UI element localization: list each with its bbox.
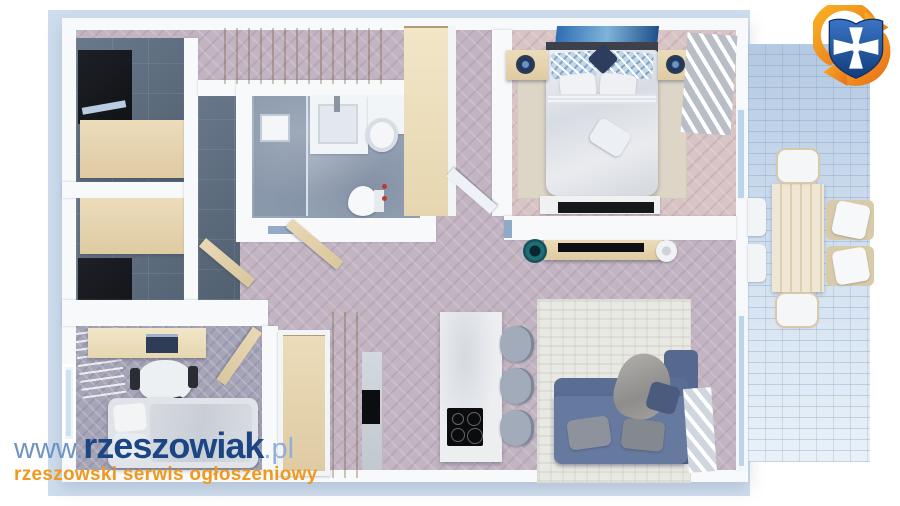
rzeszowiak-logo xyxy=(813,5,899,91)
plant-pot-teal xyxy=(523,239,547,263)
shower-enclosure xyxy=(254,96,308,216)
washing-machine-top xyxy=(366,118,398,152)
watermark-tld: .pl xyxy=(263,433,294,465)
bar-stool-2 xyxy=(500,368,534,404)
kitchen-cabinet-column xyxy=(332,312,362,478)
wood-dresser-mid xyxy=(80,198,186,254)
sofa-pillow-grey-1 xyxy=(566,415,612,451)
chair-cushion-2 xyxy=(831,246,870,285)
wood-dresser-top xyxy=(80,120,186,178)
tv-screen xyxy=(558,243,644,252)
sofa-pillow-grey-2 xyxy=(621,418,666,452)
induction-cooktop xyxy=(447,408,483,446)
watermark-www: www. xyxy=(14,433,83,465)
terrace-chair-left-1 xyxy=(748,198,766,236)
nightstand-lamp-right xyxy=(666,55,685,74)
kids-window-glass xyxy=(66,370,71,436)
watermark-tagline: rzeszowski serwis ogłoszeniowy xyxy=(14,464,318,486)
sink-faucet xyxy=(334,96,340,112)
bedroom-desk-mat xyxy=(558,202,654,213)
wall-kidsroom-top xyxy=(62,300,268,326)
terrace-chair-right-2 xyxy=(826,246,874,286)
terrace-door-frame xyxy=(736,310,748,472)
chair-cushion-1 xyxy=(831,200,871,240)
bar-stool-1 xyxy=(500,326,534,362)
floor-plan-render: www.rzeszowiak.pl rzeszowski serwis ogło… xyxy=(0,0,900,506)
hall-tall-cabinet xyxy=(404,26,448,216)
built-in-oven xyxy=(362,390,380,424)
nightstand-lamp-left xyxy=(516,55,535,74)
toilet-tank xyxy=(374,190,384,212)
burner-1 xyxy=(452,413,464,425)
terrace-chair-left-2 xyxy=(748,244,766,282)
terrace-table xyxy=(772,184,824,292)
bedroom-wardrobe-louvers xyxy=(681,32,738,135)
wall-rooms-right xyxy=(184,38,198,300)
door-jamb-mark xyxy=(504,220,512,238)
terrace-chair-top xyxy=(778,150,818,182)
entry-wardrobe-slatted xyxy=(224,28,388,84)
office-chair-arm-left xyxy=(130,368,140,390)
wall-left-divider xyxy=(62,182,194,198)
terrace-chair-bottom xyxy=(777,294,817,326)
burner-3 xyxy=(451,428,465,442)
office-chair-seat xyxy=(138,360,192,402)
hall-cabinet-edge xyxy=(448,26,456,216)
toilet-accent-dot-1 xyxy=(382,184,387,189)
kids-laptop xyxy=(146,334,178,353)
shield-refresh-logo-icon xyxy=(813,5,899,91)
watermark-url: www.rzeszowiak.pl xyxy=(14,428,294,464)
office-chair-arm-right xyxy=(188,366,198,388)
wall-bedroom-living xyxy=(504,216,736,240)
bar-stool-3 xyxy=(500,410,534,446)
burner-2 xyxy=(467,412,481,426)
bedroom-window-glass xyxy=(736,108,746,200)
vase-white xyxy=(656,240,677,262)
living-radiator xyxy=(683,387,717,473)
bed-striped-sheet xyxy=(548,94,656,104)
burner-4 xyxy=(467,428,483,444)
terrace-chair-right-1 xyxy=(826,200,874,240)
terrace-door-glass xyxy=(739,316,744,466)
toilet-accent-dot-2 xyxy=(382,196,387,201)
watermark-name: rzeszowiak xyxy=(83,425,263,466)
shower-head xyxy=(262,116,288,140)
